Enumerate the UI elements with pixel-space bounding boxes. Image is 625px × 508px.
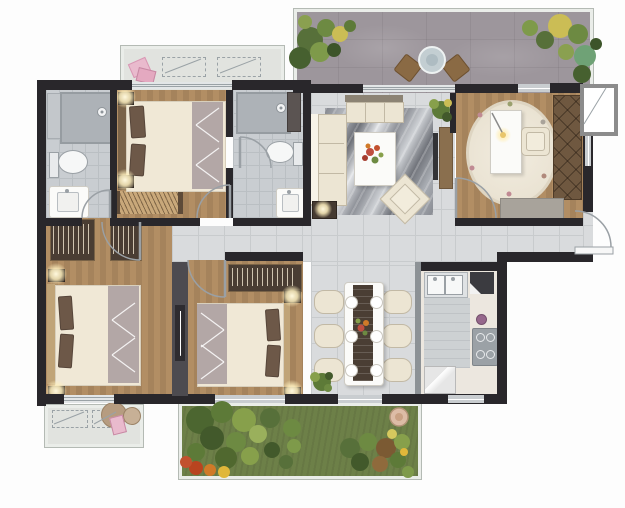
- door-swing-arc: [82, 137, 496, 297]
- desk-lamp: [492, 113, 506, 138]
- flower-arrangement: [362, 144, 384, 164]
- entry-door: [575, 211, 613, 254]
- shrub-cluster: [340, 408, 414, 478]
- shower-head: [98, 104, 286, 117]
- potted-plant: [429, 99, 452, 122]
- ac-platform-symbol: [54, 59, 606, 424]
- patio-table-set: [394, 47, 470, 82]
- blanket-folds: [112, 108, 224, 379]
- plan-vector-overlay: [0, 0, 625, 508]
- shrub-cluster: [180, 401, 301, 478]
- shrub-cluster: [289, 15, 356, 69]
- floor-plan: [0, 0, 625, 508]
- flower-arrangement: [356, 319, 370, 336]
- rug-floral-motif: [470, 102, 547, 197]
- potted-plant: [310, 372, 333, 392]
- shrub-cluster: [522, 14, 602, 83]
- faucet: [65, 189, 455, 281]
